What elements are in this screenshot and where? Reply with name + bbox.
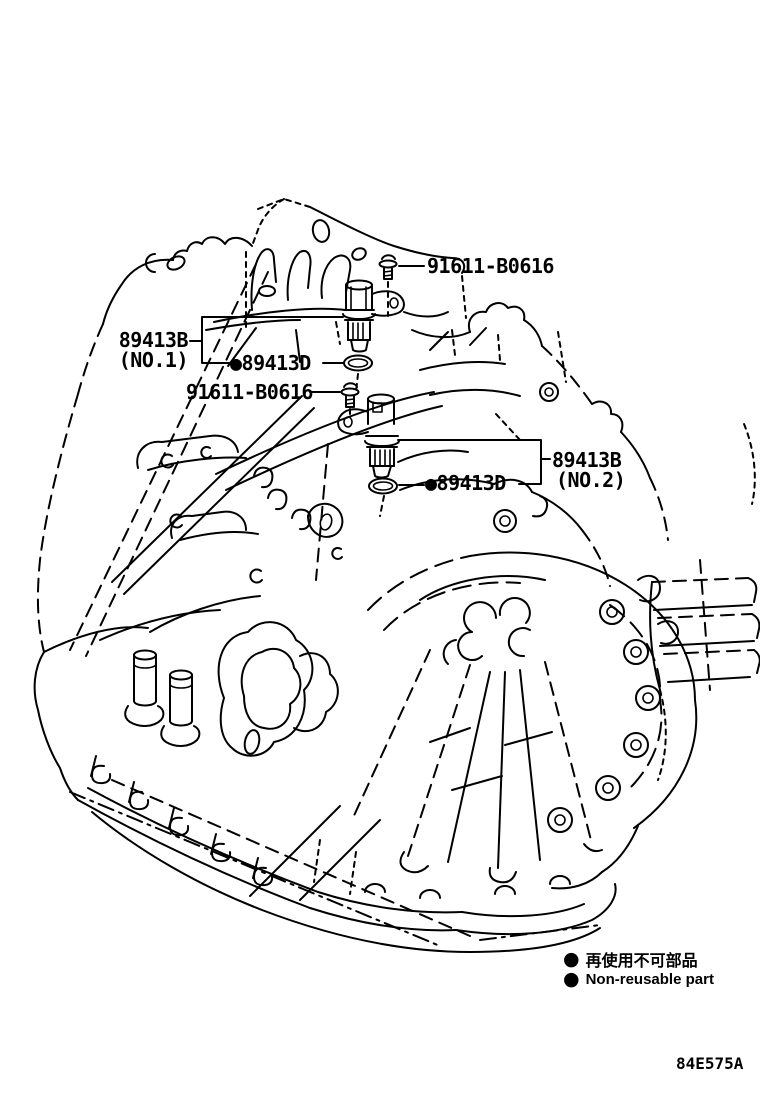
callout-sensor-no1-position: (NO.1): [100, 350, 188, 370]
callout-bolt-mid: 91611-B0616: [186, 382, 313, 402]
stud-bolts-drawing: [125, 651, 199, 746]
callout-sensor-no1-part: 89413B: [100, 330, 188, 350]
legend: ● 再使用不可部品 ● Non-reusable part: [563, 949, 714, 989]
callout-sensor-no2-part: 89413B: [552, 450, 625, 470]
callout-sensor-no2-position: (NO.2): [552, 470, 625, 490]
legend-row-ja: ● 再使用不可部品: [563, 949, 714, 969]
speed-sensor-no2-drawing: [338, 395, 399, 517]
transaxle-diagram-canvas: [0, 0, 760, 1112]
figure-code: 84E575A: [676, 1054, 743, 1073]
callout-sensor-no2: 89413B (NO.2): [552, 450, 625, 490]
parts-diagram-page: 91611-B0616 89413B (NO.1) ●89413D 91611-…: [0, 0, 760, 1112]
oring-no1-drawing: [344, 356, 372, 371]
transaxle-upper-case-drawing: [38, 199, 755, 656]
legend-text-ja: 再使用不可部品: [586, 947, 698, 971]
callout-oring-no2: ●89413D: [425, 473, 506, 493]
callout-sensor-no1: 89413B (NO.1): [100, 330, 188, 370]
callout-oring-no1: ●89413D: [230, 353, 311, 373]
oring-no2-drawing: [369, 479, 397, 494]
legend-text-en: Non-reusable part: [586, 971, 714, 988]
bolt-no1-drawing: [380, 255, 397, 316]
bell-housing-drawing: [352, 450, 760, 888]
non-reusable-bullet-icon: ●: [563, 950, 580, 969]
legend-row-en: ● Non-reusable part: [563, 969, 714, 989]
oil-pan-drawing: [35, 622, 616, 952]
callout-bolt-top: 91611-B0616: [427, 256, 554, 276]
speed-sensor-no1-drawing: [343, 281, 404, 393]
transaxle-mid-case-drawing: [100, 392, 442, 640]
non-reusable-bullet-icon: ●: [563, 970, 580, 989]
